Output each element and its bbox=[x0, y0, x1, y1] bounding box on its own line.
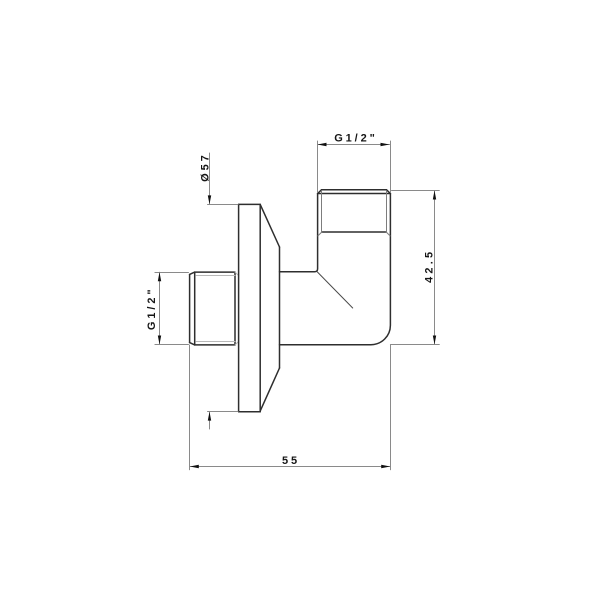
svg-text:G1/2": G1/2" bbox=[146, 287, 158, 331]
svg-text:Ø57: Ø57 bbox=[199, 152, 211, 182]
svg-text:55: 55 bbox=[282, 455, 300, 467]
svg-text:G1/2": G1/2" bbox=[334, 133, 378, 145]
svg-text:42.5: 42.5 bbox=[424, 249, 436, 283]
